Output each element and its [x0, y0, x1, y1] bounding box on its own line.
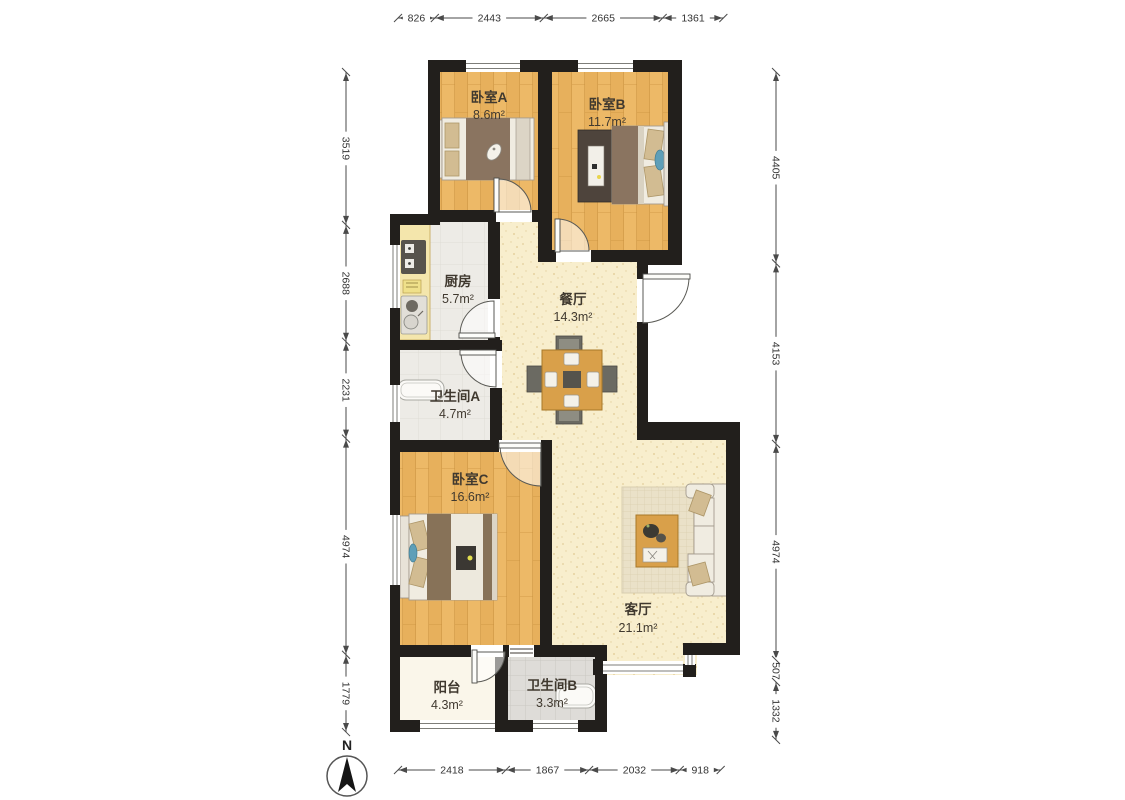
svg-text:2665: 2665 [592, 13, 616, 25]
north-label: N [342, 737, 352, 753]
bed-icon [578, 122, 670, 206]
window [578, 60, 633, 72]
kitchen-counter-icon [398, 224, 430, 340]
north-compass: N [327, 737, 367, 796]
window [603, 661, 683, 674]
room-label-dining: 餐厅 [559, 291, 588, 307]
svg-text:1332: 1332 [770, 699, 782, 723]
window [466, 60, 520, 72]
window [390, 385, 400, 422]
svg-text:4974: 4974 [770, 540, 782, 564]
bed-icon [400, 514, 497, 600]
dimension-left: 35192688223149741779 [340, 68, 353, 736]
svg-text:2418: 2418 [440, 765, 464, 777]
room-label-bathroom-b: 卫生间B [527, 677, 577, 693]
room-label-bathroom-a: 卫生间A [430, 388, 480, 404]
svg-text:4153: 4153 [770, 342, 782, 366]
window [390, 245, 400, 308]
room-area-bathroom-b: 3.3m² [536, 696, 568, 710]
room-area-balcony: 4.3m² [431, 698, 463, 712]
svg-text:826: 826 [408, 13, 426, 25]
svg-text:4974: 4974 [340, 535, 352, 559]
svg-text:1361: 1361 [681, 13, 705, 25]
svg-text:2231: 2231 [340, 378, 352, 402]
svg-text:2032: 2032 [623, 765, 647, 777]
svg-text:4405: 4405 [770, 156, 782, 180]
room-area-dining: 14.3m² [554, 310, 593, 324]
sliding-door [509, 645, 534, 657]
door [637, 274, 690, 323]
dimension-top: 826244326651361 [394, 12, 727, 25]
svg-text:2688: 2688 [340, 272, 352, 296]
room-area-kitchen: 5.7m² [442, 292, 474, 306]
dimension-right: 4405415349745071332 [770, 68, 783, 744]
window [390, 515, 400, 585]
window [685, 655, 695, 665]
svg-text:1867: 1867 [536, 765, 560, 777]
room-label-kitchen: 厨房 [445, 273, 472, 289]
svg-text:507: 507 [770, 662, 782, 680]
room-area-bedroom-b: 11.7m² [588, 115, 626, 129]
dimension-bottom: 241818672032918 [394, 764, 725, 777]
room-label-balcony: 阳台 [434, 679, 461, 695]
coffee-table-icon [636, 515, 678, 567]
room-area-bathroom-a: 4.7m² [439, 407, 471, 421]
room-label-bedroom-b: 卧室B [589, 96, 626, 112]
svg-text:918: 918 [691, 765, 709, 777]
svg-text:1779: 1779 [340, 682, 352, 706]
room-label-bedroom-a: 卧室A [471, 89, 508, 105]
floor-plan-page: { "plan_title": "三室两厅户型图", "rooms": { "b… [0, 0, 1125, 800]
svg-text:2443: 2443 [478, 13, 502, 25]
window [533, 720, 578, 732]
room-label-living: 客厅 [624, 601, 653, 617]
room-area-living: 21.1m² [619, 621, 658, 635]
room-area-bedroom-a: 8.6m² [473, 108, 505, 122]
window [420, 720, 495, 732]
floor-plan-svg: 卧室A 8.6m² 卧室B 11.7m² 厨房 5.7m² 餐厅 14.3m² … [0, 0, 1125, 800]
svg-text:3519: 3519 [340, 137, 352, 161]
room-label-bedroom-c: 卧室C [452, 471, 489, 487]
room-area-bedroom-c: 16.6m² [451, 490, 490, 504]
bed-icon [432, 118, 534, 180]
